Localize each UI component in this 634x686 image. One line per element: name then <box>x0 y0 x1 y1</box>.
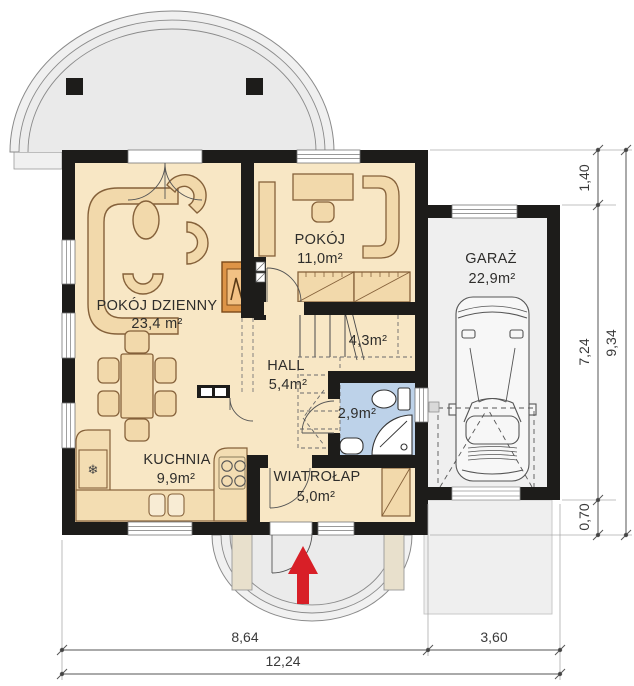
terrace <box>10 11 334 169</box>
wall-bath-top <box>328 371 415 383</box>
area-label-room: 11,0m² <box>297 251 343 267</box>
entrance-porch <box>212 528 412 621</box>
fridge-icon: ❄ <box>88 462 99 477</box>
dining-chair <box>98 358 119 383</box>
area-label-hall: 5,4m² <box>269 377 308 393</box>
area-label-bathroom: 2,9m² <box>338 406 377 422</box>
car <box>449 297 536 481</box>
vestibule-window <box>318 522 354 535</box>
vestibule-wardrobe <box>382 468 410 516</box>
area-label-kitchen: 9,9m² <box>157 471 196 487</box>
wall-kitchen-vestibule <box>247 455 260 522</box>
area-label-living: 23,4 m² <box>131 316 182 332</box>
sink-basin <box>149 494 165 516</box>
dim-garage-width: 3,60 <box>480 629 507 645</box>
porch-pillar <box>232 528 252 590</box>
garage-door-opening <box>452 487 520 500</box>
dim-total-depth: 9,34 <box>603 329 619 356</box>
desk <box>293 174 353 200</box>
room-label-kitchen: KUCHNIA <box>143 452 210 468</box>
dining-chair <box>125 419 149 441</box>
room-label-hall: HALL <box>267 358 304 374</box>
driveway <box>424 500 552 614</box>
terrace-door-opening <box>128 150 202 163</box>
garage-wall-right <box>547 205 560 500</box>
terrace-pillar <box>66 78 83 95</box>
porch-pillar <box>384 528 404 590</box>
room-label-garage: GARAŻ <box>465 251 516 267</box>
dim-house-width: 8,64 <box>231 629 258 645</box>
living-window <box>62 240 75 448</box>
dim-garage-depth: 7,24 <box>576 338 592 365</box>
coffee-table <box>133 201 159 239</box>
garage-window <box>452 205 517 218</box>
toilet-cistern <box>398 388 410 410</box>
sink-basin <box>168 494 184 516</box>
area-label-stairs: 4,3m² <box>349 333 388 349</box>
floor-plan-drawing: ❄ <box>0 0 634 686</box>
room-label-vestibule: WIATROŁAP <box>273 469 360 485</box>
dining-chair <box>125 331 149 353</box>
floor-plan-canvas: ❄ <box>0 0 634 686</box>
area-label-vestibule: 5,0m² <box>297 489 336 505</box>
terrace-pillar <box>246 78 263 95</box>
dim-total-width: 12,24 <box>265 653 300 669</box>
dining-table <box>121 354 153 418</box>
dim-front-offset: 1,40 <box>576 164 592 191</box>
dining-chair <box>155 391 176 416</box>
room-window <box>297 150 360 163</box>
room-label-living: POKÓJ DZIENNY <box>97 298 218 314</box>
desk-chair <box>312 202 334 222</box>
entrance-door-opening <box>270 522 312 535</box>
washbasin <box>340 438 363 454</box>
bookshelf <box>259 182 275 256</box>
kitchen-window <box>128 522 192 535</box>
area-label-garage: 22,9m² <box>469 271 516 287</box>
dining-chair <box>98 391 119 416</box>
dim-rear-offset: 0,70 <box>576 503 592 530</box>
wall-living-room <box>241 163 254 318</box>
dining-chair <box>155 358 176 383</box>
room-label-room: POKÓJ <box>295 232 346 248</box>
